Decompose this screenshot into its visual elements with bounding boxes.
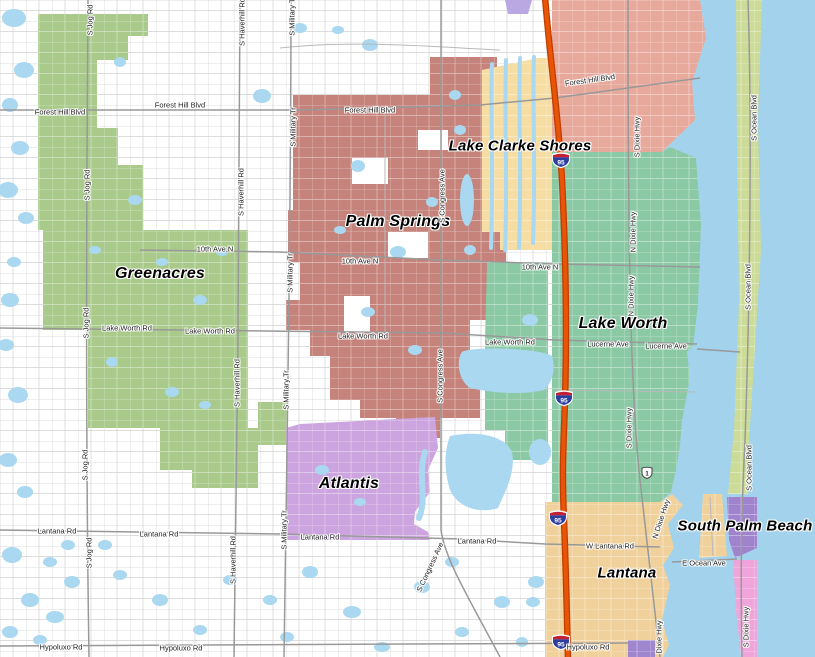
region-top-purple [505,0,532,14]
atlantis-waterway [419,452,425,518]
lake-near-lake-worth-rd [459,349,554,394]
map-canvas[interactable]: 95 1 [0,0,815,657]
map-base-layer: 95 1 [0,0,815,657]
us-1-shield-icon [642,467,652,478]
